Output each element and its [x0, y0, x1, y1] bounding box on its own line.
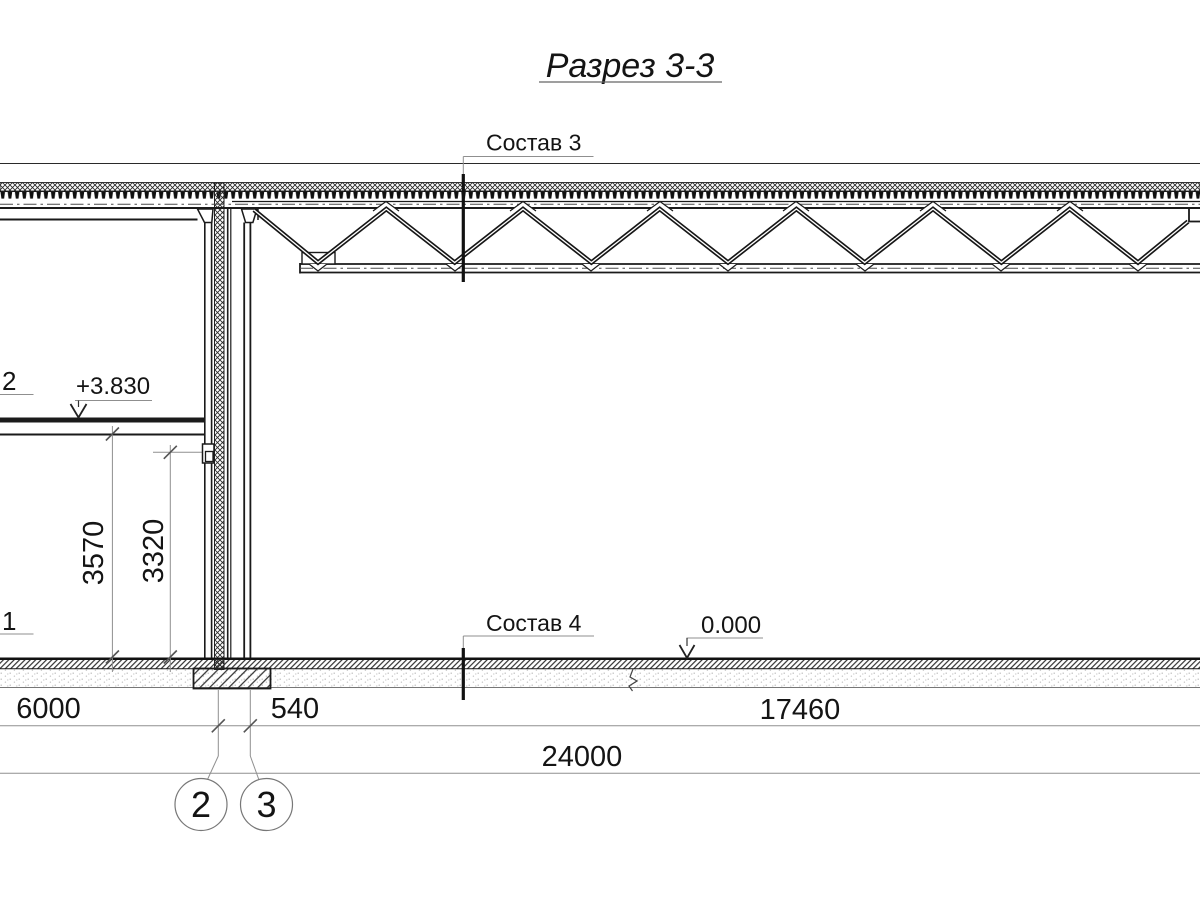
profiled-deck-band — [0, 192, 1200, 200]
roof-bottom-lines — [0, 202, 1200, 220]
title-block: Разрез 3-3 — [539, 47, 722, 85]
wall-column — [198, 183, 231, 670]
floor-screed-hatch-band — [0, 660, 1200, 669]
vertical-dim-3320: 3320 — [138, 445, 177, 672]
position-label-2-text: 2 — [2, 366, 16, 396]
wall-insulation-strip — [215, 183, 225, 670]
dim-17460-text: 17460 — [760, 694, 841, 726]
dim-6000-text: 6000 — [16, 693, 81, 725]
grid-bubble-3-label: 3 — [256, 784, 276, 825]
grid-bubble-2-label: 2 — [191, 784, 211, 825]
roof-insulation-hatch-band — [0, 183, 1200, 192]
truss-diagonals — [254, 209, 1188, 263]
vertical-dim-3570-text: 3570 — [78, 521, 110, 586]
wall-column-cap — [198, 209, 214, 223]
elevation-mark-ground: 0.000 — [680, 612, 764, 658]
grid-axes: 2 3 — [175, 756, 293, 831]
elevation-ground-value: 0.000 — [701, 612, 761, 639]
callout-sostav-3-label: Состав 3 — [486, 130, 581, 156]
elevation-mark-upper: +3.830 — [71, 373, 153, 418]
roof-assembly — [0, 164, 1200, 200]
page-title: Разрез 3-3 — [546, 47, 715, 85]
elevation-upper-value: +3.830 — [76, 373, 150, 400]
position-label-1: 1 — [0, 606, 34, 636]
vertical-dim-3570: 3570 — [78, 426, 119, 672]
drawing-canvas: Разрез 3-3 — [0, 0, 1200, 900]
dim-540-text: 540 — [271, 693, 319, 725]
horizontal-dim-overall: 24000 — [0, 741, 1200, 773]
axis2-leader — [208, 756, 219, 780]
foundation-block — [194, 669, 271, 689]
callout-sostav-4-label: Состав 4 — [486, 610, 582, 636]
elevation-ground-arrow — [680, 645, 695, 658]
position-label-2: 2 — [0, 366, 34, 396]
vertical-dim-3320-text: 3320 — [138, 519, 170, 584]
position-label-1-text: 1 — [2, 606, 16, 636]
floor-slab — [0, 659, 1200, 691]
ground-stipple-band — [0, 670, 1200, 688]
axis3-leader — [250, 756, 259, 780]
truss-apex-gussets — [373, 202, 1083, 212]
roof-truss — [254, 202, 1200, 274]
section-drawing: Разрез 3-3 — [0, 0, 1200, 900]
steel-column — [242, 207, 259, 660]
slab-band — [0, 418, 205, 423]
wall-strip-base — [215, 660, 225, 670]
slab-bearing-pad — [206, 452, 214, 462]
dim-24000-text: 24000 — [542, 741, 623, 773]
truss-bottom-chord — [300, 263, 1200, 274]
